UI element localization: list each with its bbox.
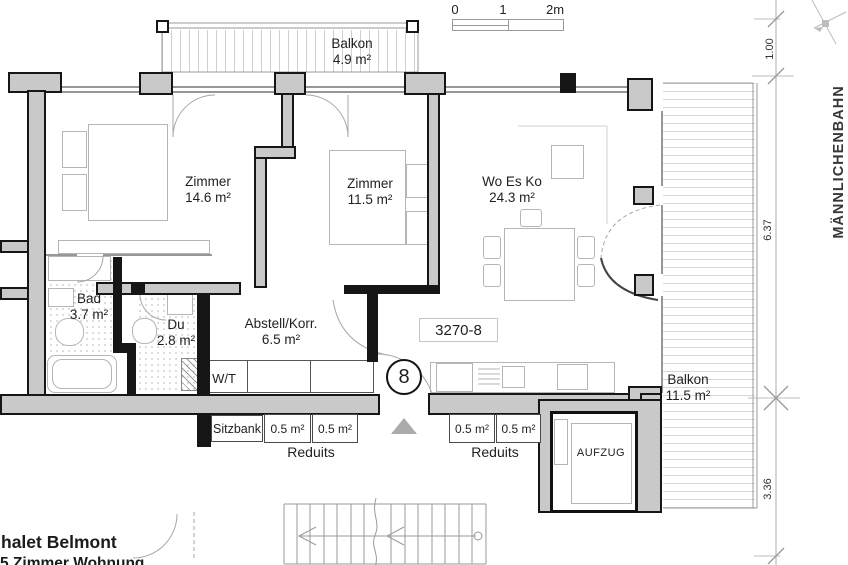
wall-segment [427,93,440,292]
wall-segment [627,78,653,111]
wall-post [634,274,654,296]
room-label-zimmer1: Zimmer 14.6 m² [185,174,231,205]
floor-plan: 0 1 2m Balkon 4.9 m² Zimmer 14.6 m² Zimm… [0,0,848,565]
room-label-bad: Bad 3.7 m² [70,291,108,322]
room-label-balkon-top: Balkon 4.9 m² [331,36,372,67]
scale-tick-0: 0 [451,2,458,17]
aufzug-label: AUFZUG [577,446,625,462]
dimension-label: 6.37 [762,219,774,240]
room-name: Zimmer [185,174,231,190]
unit-position-circle: 8 [386,359,422,395]
room-area: 24.3 m² [482,190,542,206]
room-area: 11.5 m² [666,388,711,404]
elevator-counterweight [554,419,568,465]
unit-position-number: 8 [398,366,409,389]
elevator-car [571,423,632,504]
scale-bar-midline [453,25,508,26]
kitchen-detail-lines [478,126,607,384]
room-area: 3.7 m² [70,307,108,323]
room-area: 4.9 m² [331,52,372,68]
scale-bar-divider [508,20,509,30]
wall-segment [344,285,440,294]
reduit-cell: 0.5 m² [312,414,358,443]
wall-segment [274,72,306,95]
window-lines [46,87,662,393]
scale-bar [452,19,564,31]
sitzbank-label: Sitzbank [213,422,261,436]
wall-segment [131,282,145,295]
apartment-subtitle: 5 Zimmer Wohnung [0,555,144,565]
dimension-label: 1.00 [764,38,776,59]
scale-tick-1: 1 [499,2,506,17]
wall-segment [197,413,211,447]
room-area: 2.8 m² [157,333,195,349]
room-name: Wo Es Ko [482,174,542,190]
dimension-line [748,0,800,565]
reduit-cell: 0.5 m² [449,414,495,443]
room-name: Zimmer [347,176,393,192]
room-area: 14.6 m² [185,190,231,206]
wall-segment [560,73,576,93]
sitzbank-box: Sitzbank [211,415,263,442]
unit-number: 3270-8 [435,322,482,339]
stairs [284,498,486,565]
wall-segment [0,287,29,300]
dimension-label: 3.36 [762,478,774,499]
north-compass-icon [812,0,846,44]
room-name: Bad [70,291,108,307]
wall-segment [0,394,380,415]
wall-segment [404,72,446,95]
scale-tick-2m: 2m [546,2,564,17]
room-label-zimmer2: Zimmer 11.5 m² [347,176,393,207]
wall-segment [367,292,378,362]
wall-segment [127,351,136,396]
wt-label: W/T [212,371,236,387]
wall-post [633,186,654,205]
reduits-label-left: Reduits [287,445,334,461]
wall-segment [113,257,122,350]
room-area: 11.5 m² [347,192,393,208]
street-name: MÄNNLICHENBAHN [831,85,847,238]
building-title: halet Belmont [1,532,117,553]
wall-segment [254,157,267,288]
reduit-cell: 0.5 m² [264,414,311,443]
balcony-post [406,20,419,33]
wall-segment [139,72,173,95]
room-name: Du [157,317,195,333]
reduit-cell: 0.5 m² [496,414,541,443]
room-area: 6.5 m² [245,332,318,348]
balcony-post [156,20,169,33]
wall-segment [197,294,210,396]
room-label-balkon-right: Balkon 11.5 m² [666,372,711,403]
room-label-abstell: Abstell/Korr. 6.5 m² [245,316,318,347]
reduits-label-right: Reduits [471,445,518,461]
unit-number-box: 3270-8 [419,318,498,342]
entrance-marker-triangle [391,418,417,434]
room-name: Balkon [666,372,711,388]
wall-segment [0,240,29,253]
room-name: Balkon [331,36,372,52]
wall-segment [27,90,46,410]
room-label-woesko: Wo Es Ko 24.3 m² [482,174,542,205]
room-name: Abstell/Korr. [245,316,318,332]
room-label-du: Du 2.8 m² [157,317,195,348]
